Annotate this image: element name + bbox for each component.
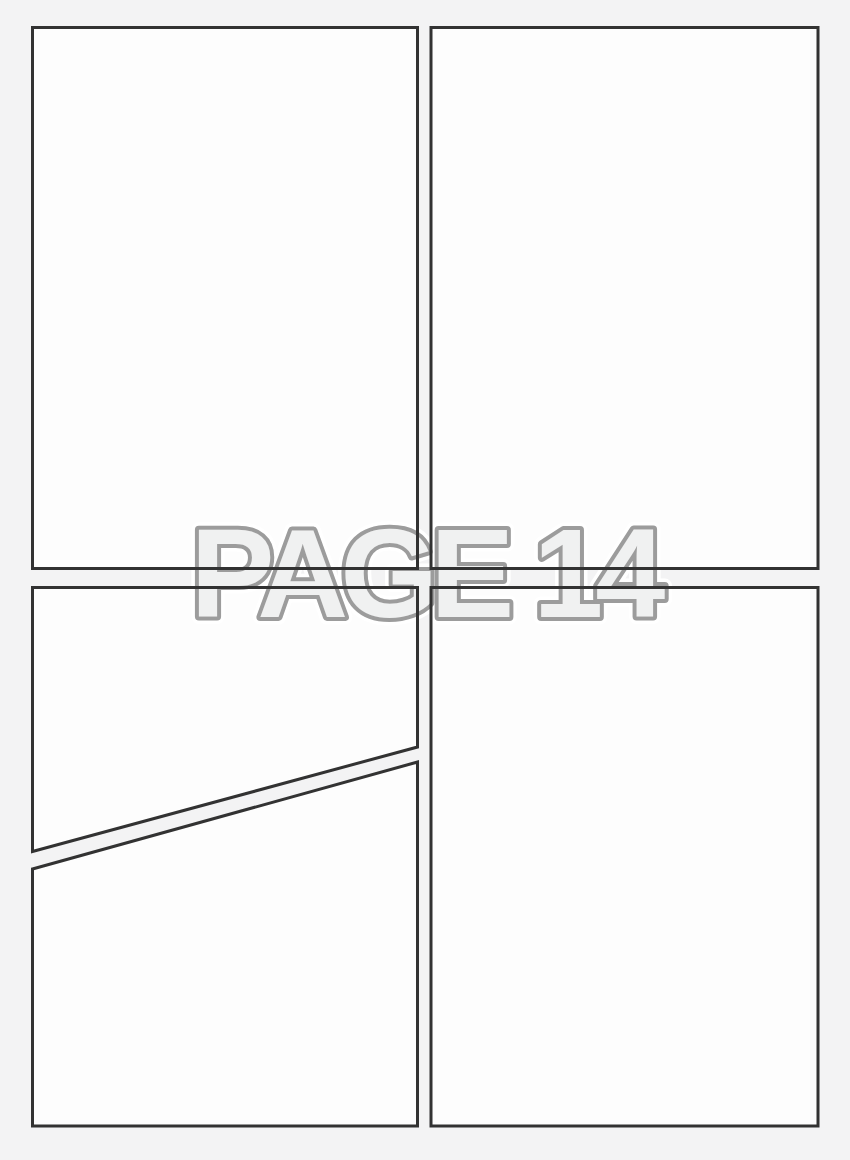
- panel-bottom-right-fill: [431, 588, 818, 1127]
- comic-page: PAGE 14 PAGE 14: [0, 0, 850, 1160]
- panel-top-right-fill: [431, 28, 818, 569]
- page-number-label: PAGE 14 PAGE 14: [191, 503, 666, 644]
- page-label: PAGE 14: [191, 503, 666, 644]
- comic-page-template: PAGE 14 PAGE 14: [0, 0, 850, 1160]
- panel-top-left-fill: [33, 28, 418, 569]
